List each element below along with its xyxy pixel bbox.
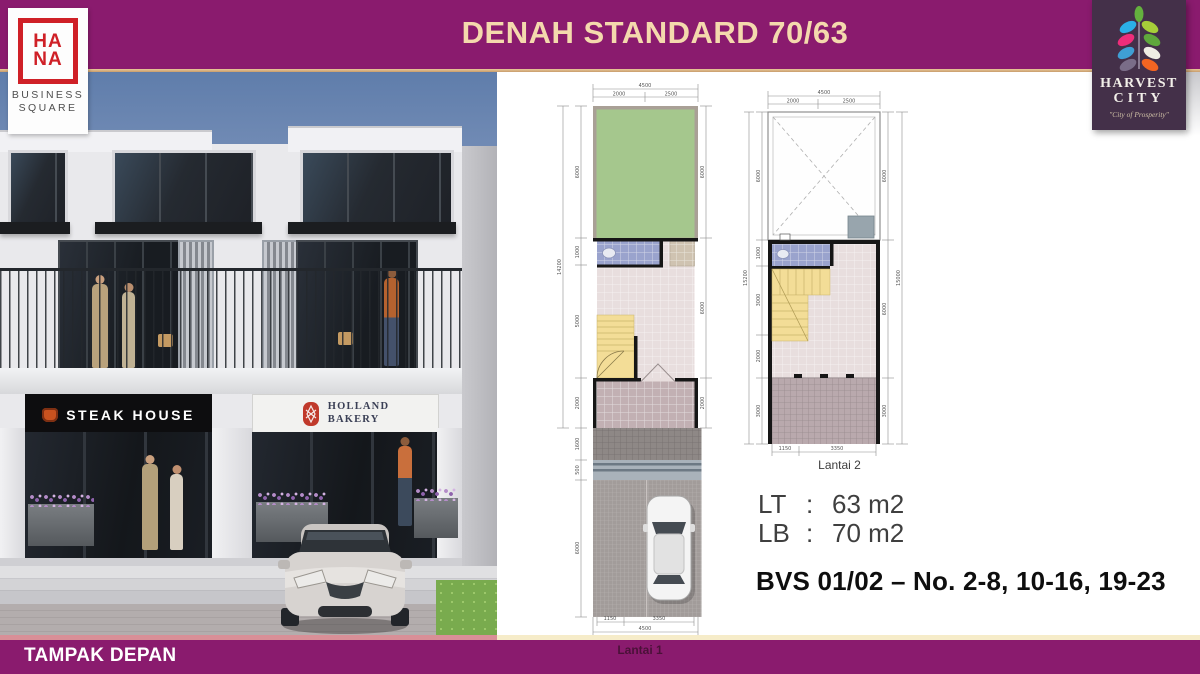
floorplan-lantai2: 4500 2000 2500 6000 1000 3000 2000 3000 … [742, 84, 937, 476]
holland-bakery-sign-label: HOLLANDBAKERY [328, 401, 390, 426]
steak-house-sign: STEAK HOUSE [25, 394, 212, 436]
unit-info: BVS 01/02 – No. 2-8, 10-16, 19-23 [756, 566, 1166, 597]
flowers [28, 493, 94, 507]
svg-text:4500: 4500 [639, 626, 652, 632]
hana-business-label: BUSINESS [8, 89, 88, 102]
building-photo: STEAK HOUSE HOLLANDBAKERY [0, 72, 497, 640]
svg-text:6000: 6000 [882, 170, 888, 183]
svg-text:2000: 2000 [756, 350, 762, 363]
facade-pillar [0, 428, 25, 568]
garden [593, 106, 698, 238]
svg-text:500: 500 [575, 465, 581, 475]
balcony-railing [0, 268, 462, 373]
person [170, 474, 183, 550]
planter [414, 498, 458, 538]
void-area [768, 112, 880, 240]
svg-text:3000: 3000 [882, 405, 888, 418]
holland-bakery-sign: HOLLANDBAKERY [252, 394, 439, 434]
harvest-name-2: CITY [1092, 91, 1186, 106]
svg-text:4500: 4500 [639, 83, 652, 89]
bathroom [597, 242, 663, 268]
lantai2-caption: Lantai 2 [742, 458, 937, 472]
balcony-slab [0, 368, 462, 394]
lb-row: LB:70 m2 [758, 519, 904, 548]
svg-text:2500: 2500 [843, 99, 856, 105]
upper-window [300, 150, 454, 230]
hana-logo-mark: HA NA [18, 18, 78, 84]
grass-patch [436, 580, 497, 640]
bathroom [772, 244, 834, 269]
svg-text:6000: 6000 [700, 166, 706, 179]
harvest-city-logo: HARVEST CITY "City of Prosperity" [1092, 0, 1186, 130]
flowers [414, 487, 458, 501]
harvest-tree-icon [1109, 5, 1169, 71]
entrance-steps [0, 566, 497, 604]
hana-logo: HA NA BUSINESS SQUARE [8, 8, 88, 134]
svg-text:3350: 3350 [653, 616, 666, 622]
awning [95, 222, 262, 234]
parapet [288, 126, 462, 152]
svg-text:1600: 1600 [575, 438, 581, 451]
flowers [256, 491, 328, 505]
holland-bakery-windmill-icon [302, 401, 320, 427]
upper-window [112, 150, 256, 230]
svg-text:6000: 6000 [575, 542, 581, 555]
svg-text:6000: 6000 [700, 302, 706, 315]
svg-text:2500: 2500 [665, 92, 678, 98]
page-title: DENAH STANDARD 70/63 [400, 15, 910, 51]
awning [288, 222, 456, 234]
area-specs: LT:63 m2 LB:70 m2 [758, 490, 904, 548]
svg-text:2000: 2000 [700, 397, 706, 410]
svg-text:2000: 2000 [787, 99, 800, 105]
svg-text:3000: 3000 [756, 405, 762, 418]
svg-text:1150: 1150 [604, 616, 617, 622]
svg-text:1150: 1150 [779, 446, 792, 452]
svg-text:1000: 1000 [575, 246, 581, 259]
svg-text:3350: 3350 [831, 446, 844, 452]
svg-text:4500: 4500 [818, 90, 831, 96]
facade-pillar [212, 428, 252, 568]
slide: DENAH STANDARD 70/63 STEAK HOUSE [0, 0, 1200, 674]
harvest-tagline: "City of Prosperity" [1092, 110, 1186, 119]
steak-house-badge-icon [42, 408, 58, 422]
floorplan-lantai1: 4500 2000 2500 6000 1000 5000 2000 1600 … [548, 76, 723, 638]
lt-row: LT:63 m2 [758, 490, 904, 519]
car-top-icon [643, 496, 695, 604]
corner-shadow [1186, 72, 1200, 136]
planter [28, 504, 94, 546]
steak-house-sign-label: STEAK HOUSE [66, 407, 195, 423]
person [142, 464, 158, 550]
building-side-wall [462, 146, 497, 604]
svg-text:6000: 6000 [756, 170, 762, 183]
svg-text:2000: 2000 [575, 397, 581, 410]
svg-text:3000: 3000 [756, 294, 762, 307]
svg-text:6000: 6000 [882, 303, 888, 316]
car-front-icon [278, 518, 412, 636]
svg-text:6000: 6000 [575, 166, 581, 179]
harvest-name-1: HARVEST [1092, 76, 1186, 91]
lantai1-caption: Lantai 1 [560, 643, 720, 657]
svg-text:2000: 2000 [613, 92, 626, 98]
awning [0, 222, 70, 234]
hana-square-label: SQUARE [8, 102, 88, 115]
svg-text:15000: 15000 [896, 270, 902, 286]
svg-text:5000: 5000 [575, 315, 581, 328]
stairs [597, 315, 638, 378]
person [398, 446, 412, 526]
svg-text:14200: 14200 [557, 259, 563, 275]
upper-window [8, 150, 68, 230]
svg-text:1000: 1000 [756, 247, 762, 260]
footer-label: TAMPAK DEPAN [24, 645, 176, 667]
svg-text:15200: 15200 [743, 270, 749, 286]
